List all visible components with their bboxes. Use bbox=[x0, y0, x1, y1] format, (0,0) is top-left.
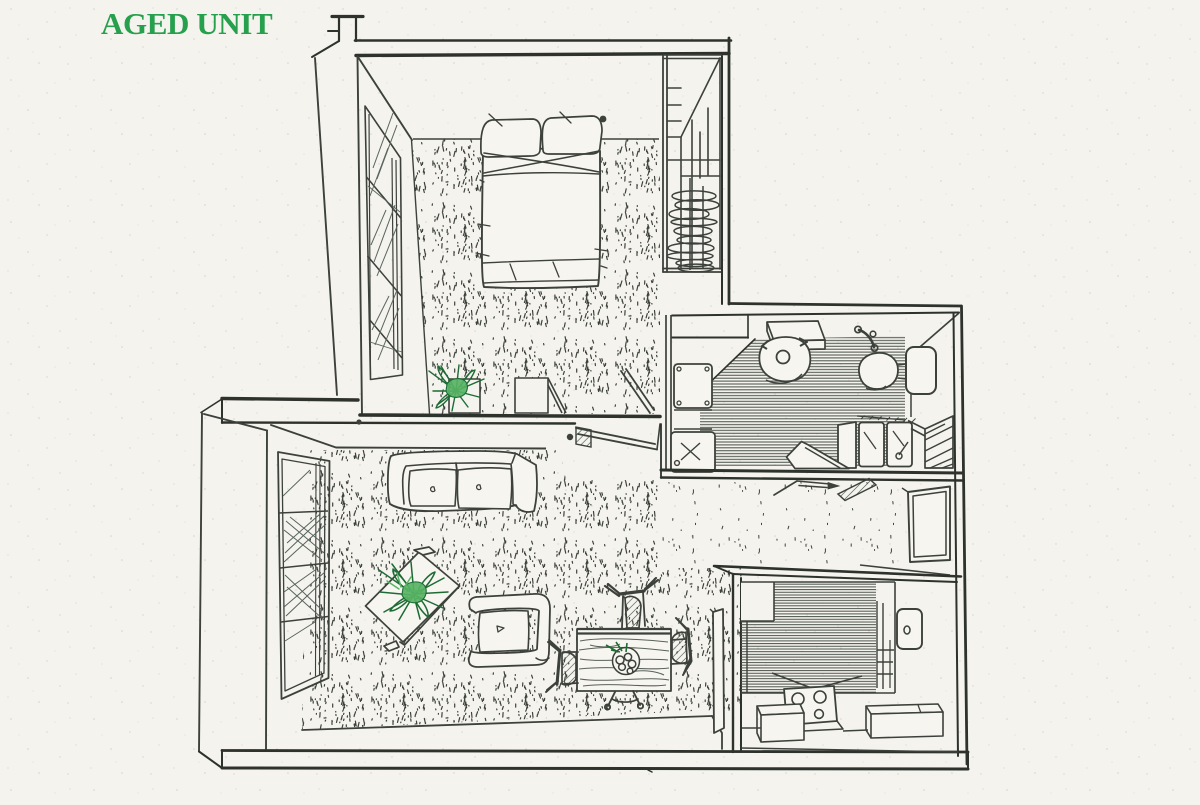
svg-text:AGED UNIT: AGED UNIT bbox=[101, 6, 273, 41]
